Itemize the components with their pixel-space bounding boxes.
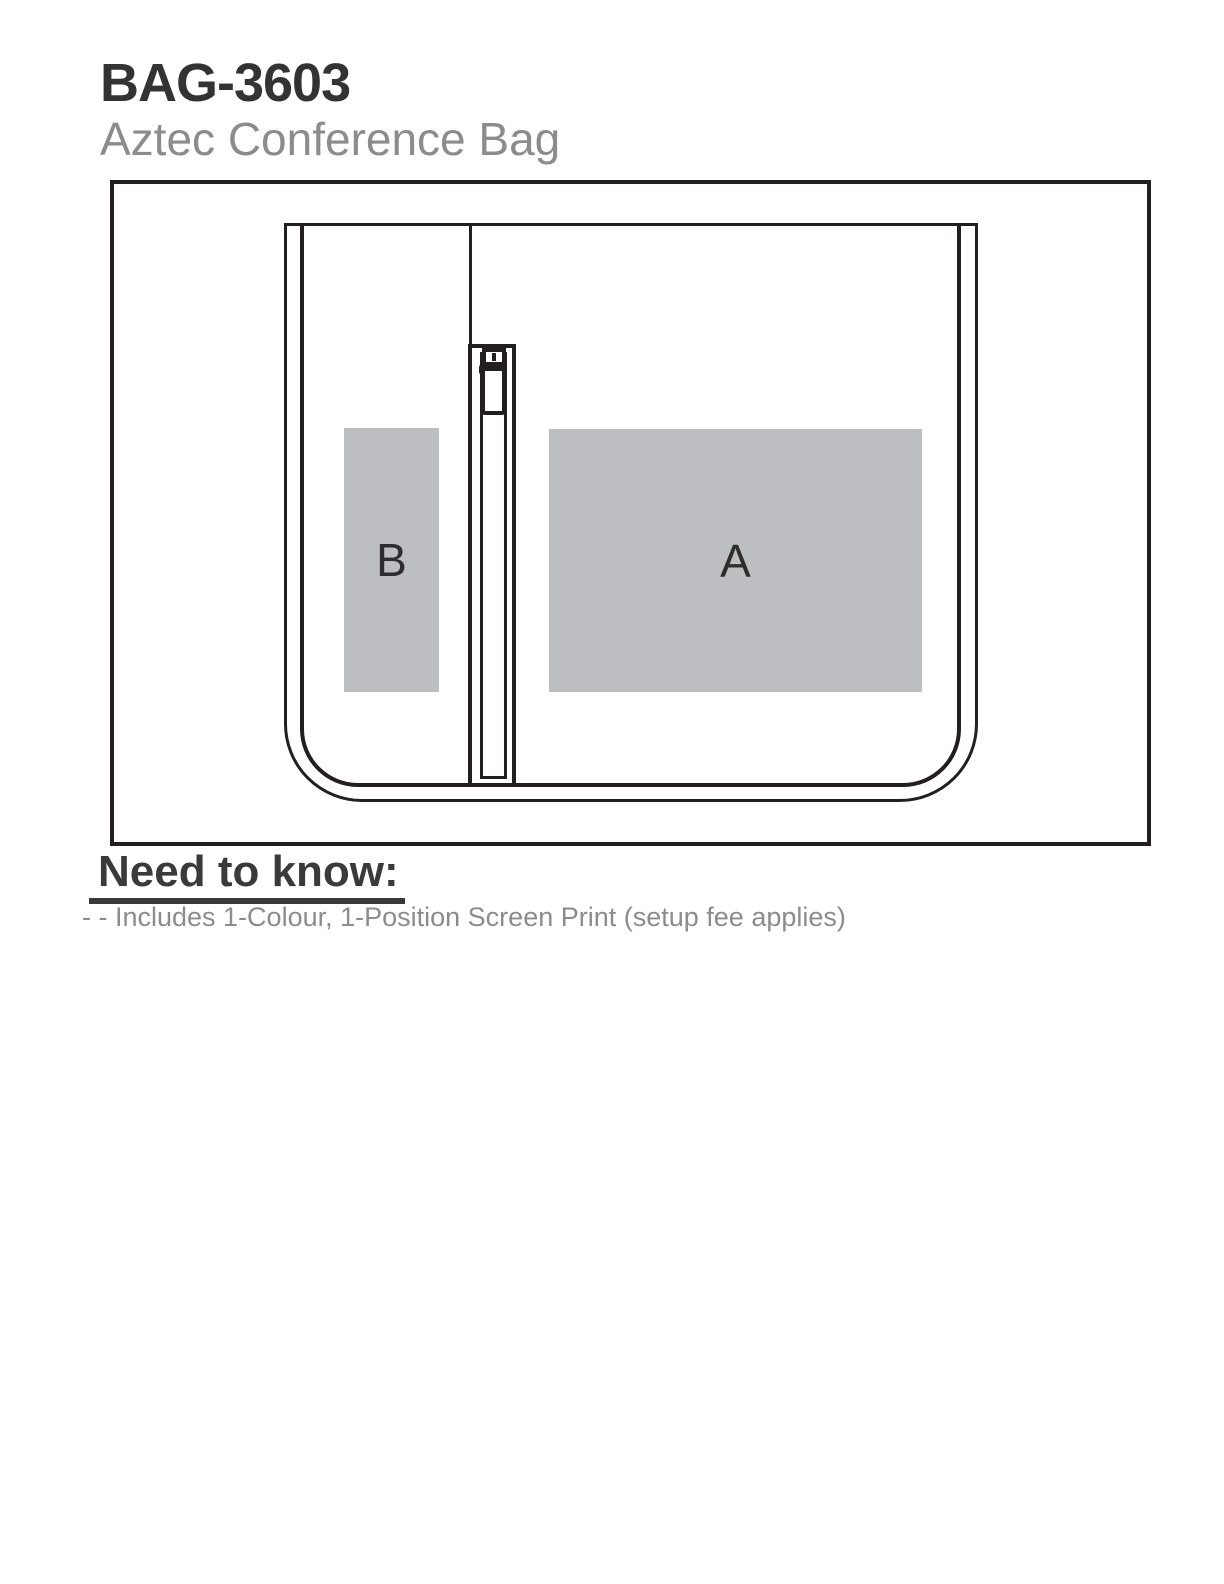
- zipper-pull-tab: [481, 367, 506, 415]
- zipper-tape: [480, 352, 507, 779]
- need-to-know-heading: Need to know:: [89, 850, 405, 904]
- product-name: Aztec Conference Bag: [100, 116, 560, 162]
- zipper-slider-pin: [492, 353, 496, 361]
- need-to-know-note: - - Includes 1-Colour, 1-Position Screen…: [82, 903, 846, 933]
- diagram-frame: B A: [110, 180, 1151, 846]
- bag-divider-line: [469, 226, 472, 344]
- print-area-b: B: [344, 428, 439, 692]
- print-area-b-label: B: [376, 533, 407, 587]
- print-area-a-label: A: [720, 534, 751, 588]
- zipper-slider-cap: [482, 348, 506, 366]
- print-area-a: A: [549, 429, 922, 692]
- product-code: BAG-3603: [100, 56, 350, 110]
